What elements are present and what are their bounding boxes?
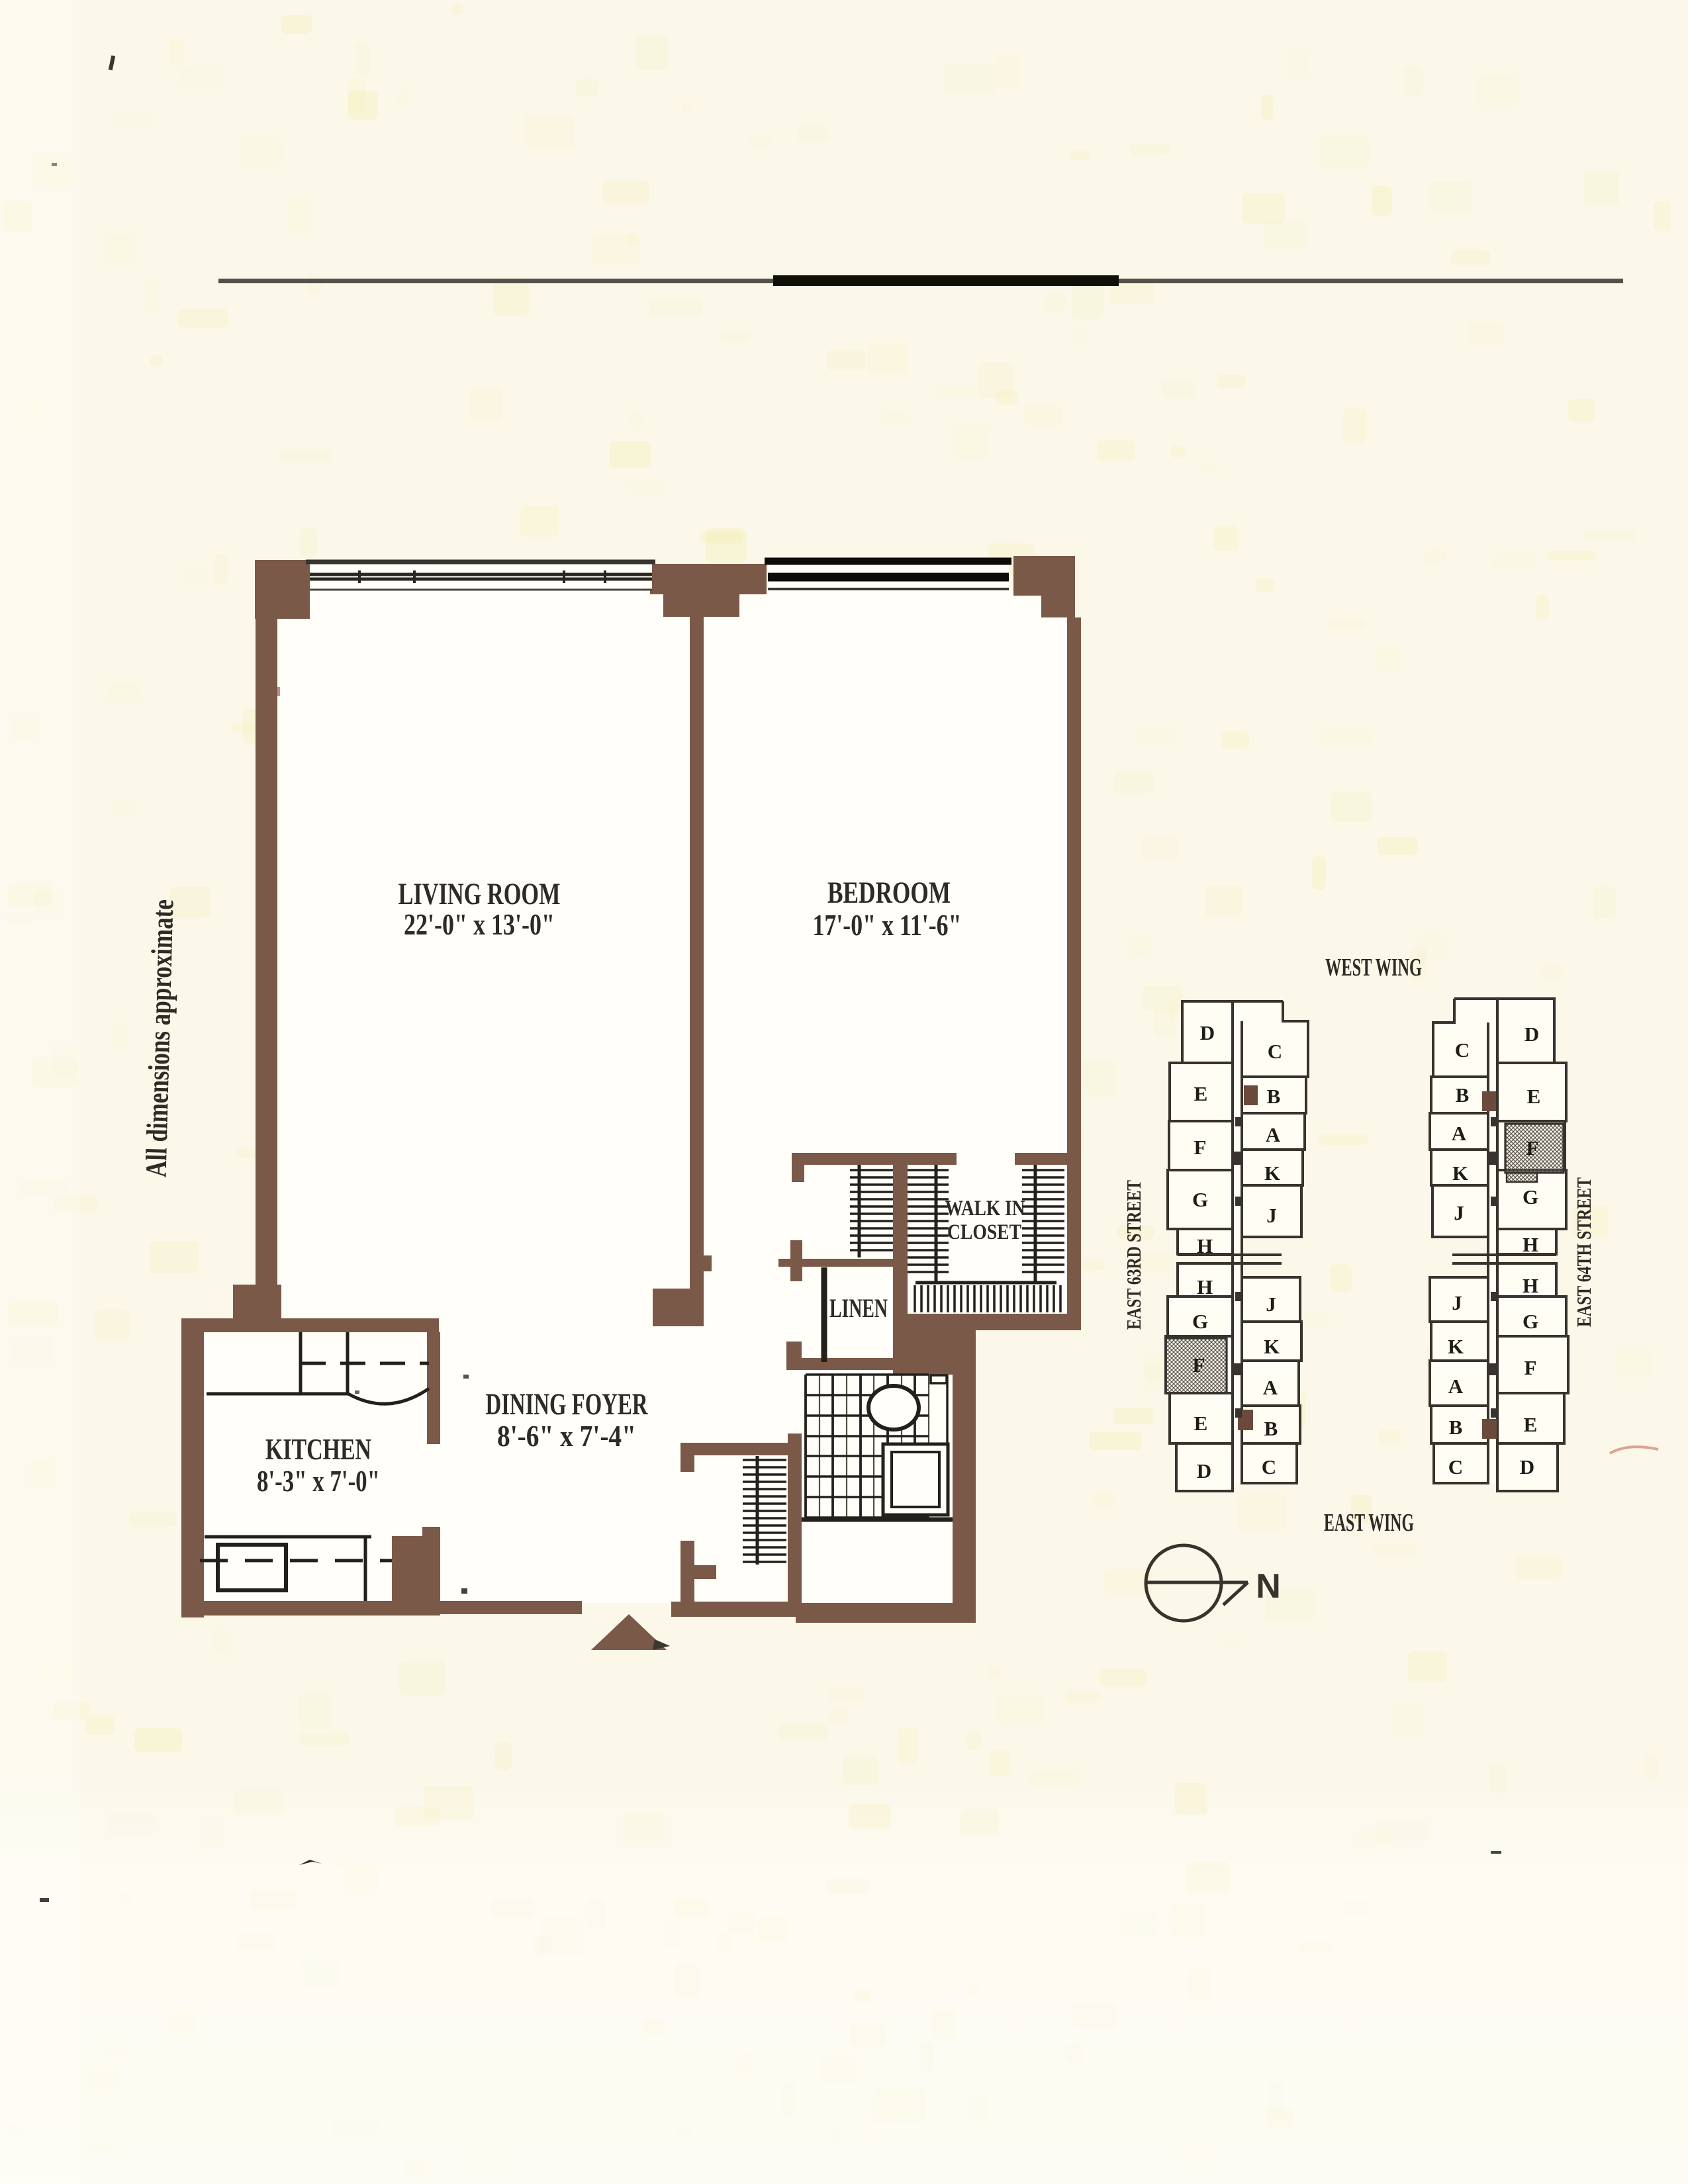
svg-text:8'-6" x 7'-4": 8'-6" x 7'-4" — [497, 1419, 636, 1453]
svg-text:D: D — [1524, 1023, 1539, 1046]
svg-text:A: A — [1266, 1123, 1281, 1146]
svg-text:LIVING ROOM: LIVING ROOM — [399, 877, 561, 911]
svg-text:K: K — [1264, 1161, 1280, 1185]
svg-text:J: J — [1266, 1293, 1276, 1316]
svg-text:J: J — [1454, 1201, 1464, 1224]
svg-text:A: A — [1448, 1375, 1464, 1398]
svg-text:8'-3" x 7'-0": 8'-3" x 7'-0" — [257, 1465, 380, 1498]
svg-text:E: E — [1524, 1413, 1538, 1436]
svg-text:H: H — [1197, 1275, 1213, 1298]
svg-text:G: G — [1523, 1185, 1538, 1208]
svg-text:K: K — [1448, 1335, 1464, 1358]
svg-text:LINEN: LINEN — [829, 1293, 888, 1323]
svg-text:E: E — [1527, 1085, 1541, 1108]
svg-text:B: B — [1267, 1085, 1281, 1108]
svg-text:F: F — [1193, 1353, 1205, 1377]
svg-text:D: D — [1197, 1459, 1211, 1482]
svg-text:C: C — [1268, 1040, 1282, 1063]
svg-text:BEDROOM: BEDROOM — [827, 876, 951, 910]
svg-text:G: G — [1192, 1310, 1208, 1333]
svg-text:J: J — [1266, 1204, 1277, 1227]
svg-text:B: B — [1264, 1417, 1278, 1440]
svg-text:D: D — [1520, 1455, 1534, 1479]
svg-text:H: H — [1197, 1234, 1213, 1257]
svg-text:E: E — [1194, 1082, 1208, 1105]
svg-text:C: C — [1262, 1455, 1276, 1479]
svg-text:G: G — [1192, 1188, 1208, 1211]
svg-text:WALK IN: WALK IN — [945, 1197, 1025, 1220]
svg-text:H: H — [1523, 1233, 1538, 1256]
svg-text:KITCHEN: KITCHEN — [265, 1433, 371, 1466]
svg-text:CLOSET: CLOSET — [947, 1220, 1021, 1244]
svg-text:K: K — [1264, 1335, 1280, 1358]
svg-text:DINING FOYER: DINING FOYER — [486, 1387, 649, 1422]
svg-text:17'-0" x 11'-6": 17'-0" x 11'-6" — [813, 908, 962, 942]
svg-text:F: F — [1526, 1136, 1539, 1160]
svg-text:B: B — [1449, 1416, 1463, 1439]
svg-text:EAST 64TH STREET: EAST 64TH STREET — [1572, 1177, 1595, 1327]
svg-text:H: H — [1523, 1274, 1538, 1297]
svg-text:WEST WING: WEST WING — [1325, 954, 1422, 981]
svg-text:22'-0" x 13'-0": 22'-0" x 13'-0" — [404, 907, 555, 941]
svg-text:J: J — [1452, 1291, 1462, 1314]
svg-text:F: F — [1524, 1356, 1537, 1379]
svg-text:G: G — [1523, 1310, 1538, 1333]
svg-text:E: E — [1194, 1412, 1208, 1435]
svg-text:EAST WING: EAST WING — [1324, 1509, 1414, 1537]
svg-text:N: N — [1256, 1567, 1281, 1606]
svg-text:D: D — [1200, 1021, 1215, 1044]
svg-text:A: A — [1263, 1376, 1278, 1399]
svg-text:K: K — [1452, 1161, 1468, 1185]
svg-text:C: C — [1455, 1038, 1470, 1062]
svg-text:EAST 63RD STREET: EAST 63RD STREET — [1122, 1180, 1145, 1330]
svg-text:C: C — [1448, 1455, 1463, 1479]
svg-text:B: B — [1456, 1083, 1470, 1107]
svg-text:F: F — [1194, 1136, 1207, 1159]
svg-text:A: A — [1452, 1122, 1467, 1145]
